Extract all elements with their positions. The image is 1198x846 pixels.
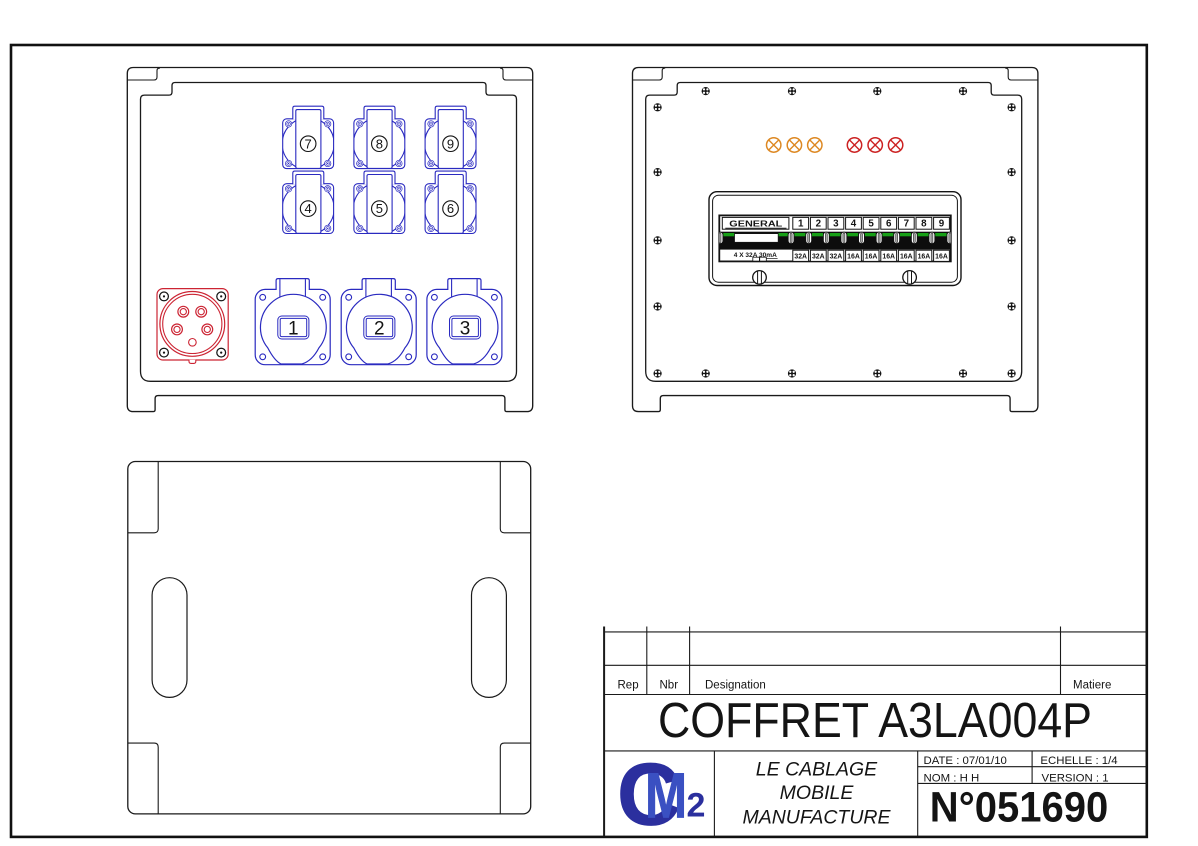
svg-text:5: 5 <box>376 201 383 216</box>
svg-text:Rep: Rep <box>618 680 639 692</box>
svg-text:7: 7 <box>305 136 312 151</box>
svg-text:MOBILE: MOBILE <box>780 782 855 804</box>
svg-text:16A: 16A <box>935 253 948 260</box>
svg-text:MANUFACTURE: MANUFACTURE <box>742 807 891 829</box>
svg-text:COFFRET A3LA004P: COFFRET A3LA004P <box>658 693 1092 748</box>
svg-text:1: 1 <box>288 319 299 340</box>
svg-text:LE CABLAGE: LE CABLAGE <box>756 759 878 781</box>
svg-text:8: 8 <box>921 219 927 230</box>
svg-text:Designation: Designation <box>705 680 766 692</box>
svg-text:16A: 16A <box>847 253 860 260</box>
svg-text:9: 9 <box>939 219 945 230</box>
svg-text:6: 6 <box>447 201 454 216</box>
svg-text:GENERAL: GENERAL <box>729 218 782 228</box>
svg-text:ECHELLE : 1/4: ECHELLE : 1/4 <box>1040 755 1117 767</box>
svg-text:M: M <box>645 761 687 832</box>
svg-text:4: 4 <box>851 219 857 230</box>
svg-text:16A: 16A <box>882 253 895 260</box>
svg-text:Matiere: Matiere <box>1073 680 1111 692</box>
svg-text:32A: 32A <box>794 253 807 260</box>
svg-text:N°051690: N°051690 <box>930 783 1108 830</box>
svg-text:Nbr: Nbr <box>660 680 679 692</box>
svg-text:9: 9 <box>447 136 454 151</box>
svg-text:16A: 16A <box>900 253 913 260</box>
svg-text:16A: 16A <box>918 253 931 260</box>
svg-text:6: 6 <box>886 219 892 230</box>
svg-text:1: 1 <box>798 219 804 230</box>
svg-text:2: 2 <box>374 319 385 340</box>
svg-text:5: 5 <box>868 219 874 230</box>
svg-text:8: 8 <box>376 136 383 151</box>
svg-text:32A: 32A <box>812 253 825 260</box>
svg-text:2: 2 <box>687 787 706 825</box>
svg-text:4: 4 <box>305 201 312 216</box>
svg-text:2: 2 <box>816 219 822 230</box>
svg-text:3: 3 <box>460 319 471 340</box>
svg-text:16A: 16A <box>865 253 878 260</box>
svg-text:7: 7 <box>904 219 910 230</box>
svg-text:3: 3 <box>833 219 839 230</box>
svg-text:32A: 32A <box>830 253 843 260</box>
svg-text:DATE : 07/01/10: DATE : 07/01/10 <box>924 755 1007 767</box>
